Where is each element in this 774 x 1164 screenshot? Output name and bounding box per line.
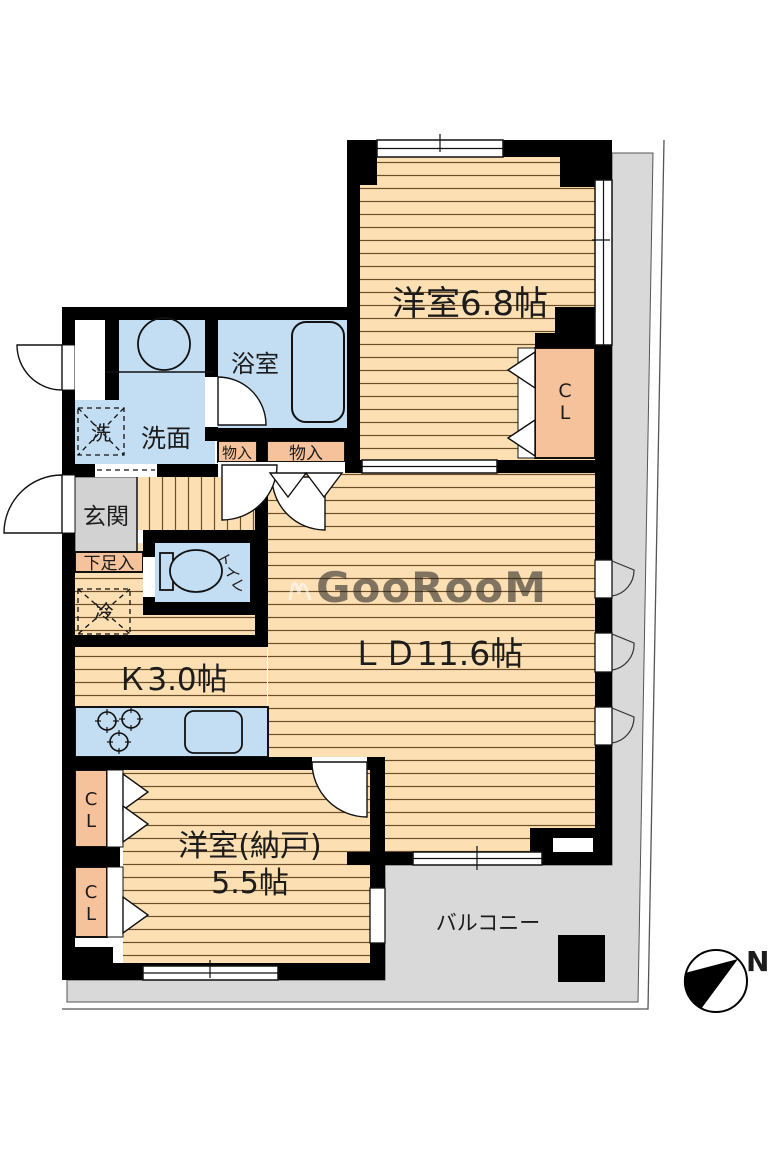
door-gap-service <box>62 345 75 390</box>
label-closet-left1-l: L <box>86 811 96 832</box>
label-bathroom: 浴室 <box>231 350 279 378</box>
door-gap-bath <box>205 377 218 427</box>
label-washroom: 洗面 <box>141 424 191 453</box>
label-entrance: 玄関 <box>83 504 129 530</box>
compass-north-label: N <box>746 945 769 978</box>
pipe-space <box>75 332 105 394</box>
label-closet-left1-c: C <box>85 789 98 810</box>
label-storage2: 物入 <box>289 444 323 464</box>
label-kitchen: Ｋ3.0帖 <box>116 662 227 698</box>
label-balcony: バルコニー <box>436 911 541 935</box>
bathtub <box>292 322 344 422</box>
watermark-text: GooRooM <box>316 563 547 612</box>
door-entrance <box>4 475 62 533</box>
label-closet-left2-c: C <box>85 882 98 903</box>
window-storage-right <box>370 888 385 943</box>
door-gap-toilet <box>143 557 155 597</box>
label-closet-left2-l: L <box>86 904 96 925</box>
floor-plan-svg: GooRooM 洋室6.8帖 ＬＤ11.6帖 Ｋ3.0帖 洋室(納戸) 5.5帖… <box>0 0 774 1164</box>
label-storage1: 物入 <box>222 444 252 462</box>
label-storage-room-2: 5.5帖 <box>211 866 289 901</box>
label-living-dining: ＬＤ11.6帖 <box>351 634 523 673</box>
label-washer: 洗 <box>91 421 111 445</box>
window-western-right <box>592 180 612 345</box>
compass: N <box>684 945 770 1012</box>
toilet-side-floor <box>143 615 267 635</box>
door-gap-washroom <box>95 464 157 477</box>
label-closet-main-c: C <box>558 380 571 402</box>
floor-plan: GooRooM 洋室6.8帖 ＬＤ11.6帖 Ｋ3.0帖 洋室(納戸) 5.5帖… <box>0 0 774 1164</box>
label-closet-main-l: L <box>560 402 571 424</box>
sliding-door-western-ld <box>362 460 497 473</box>
label-fridge: 冷 <box>94 600 114 624</box>
door-gap-entrance <box>62 475 75 533</box>
label-shoe-cabinet: 下足入 <box>84 554 135 574</box>
closet-left1-door-strip <box>107 770 123 847</box>
closet-left2-door-strip <box>107 867 123 937</box>
door-service <box>17 345 62 390</box>
label-western-room: 洋室6.8帖 <box>392 284 548 324</box>
label-storage-room-1: 洋室(納戸) <box>178 829 321 864</box>
watermark: GooRooM <box>290 563 547 612</box>
window-top <box>377 134 503 157</box>
slot-window <box>553 838 593 852</box>
